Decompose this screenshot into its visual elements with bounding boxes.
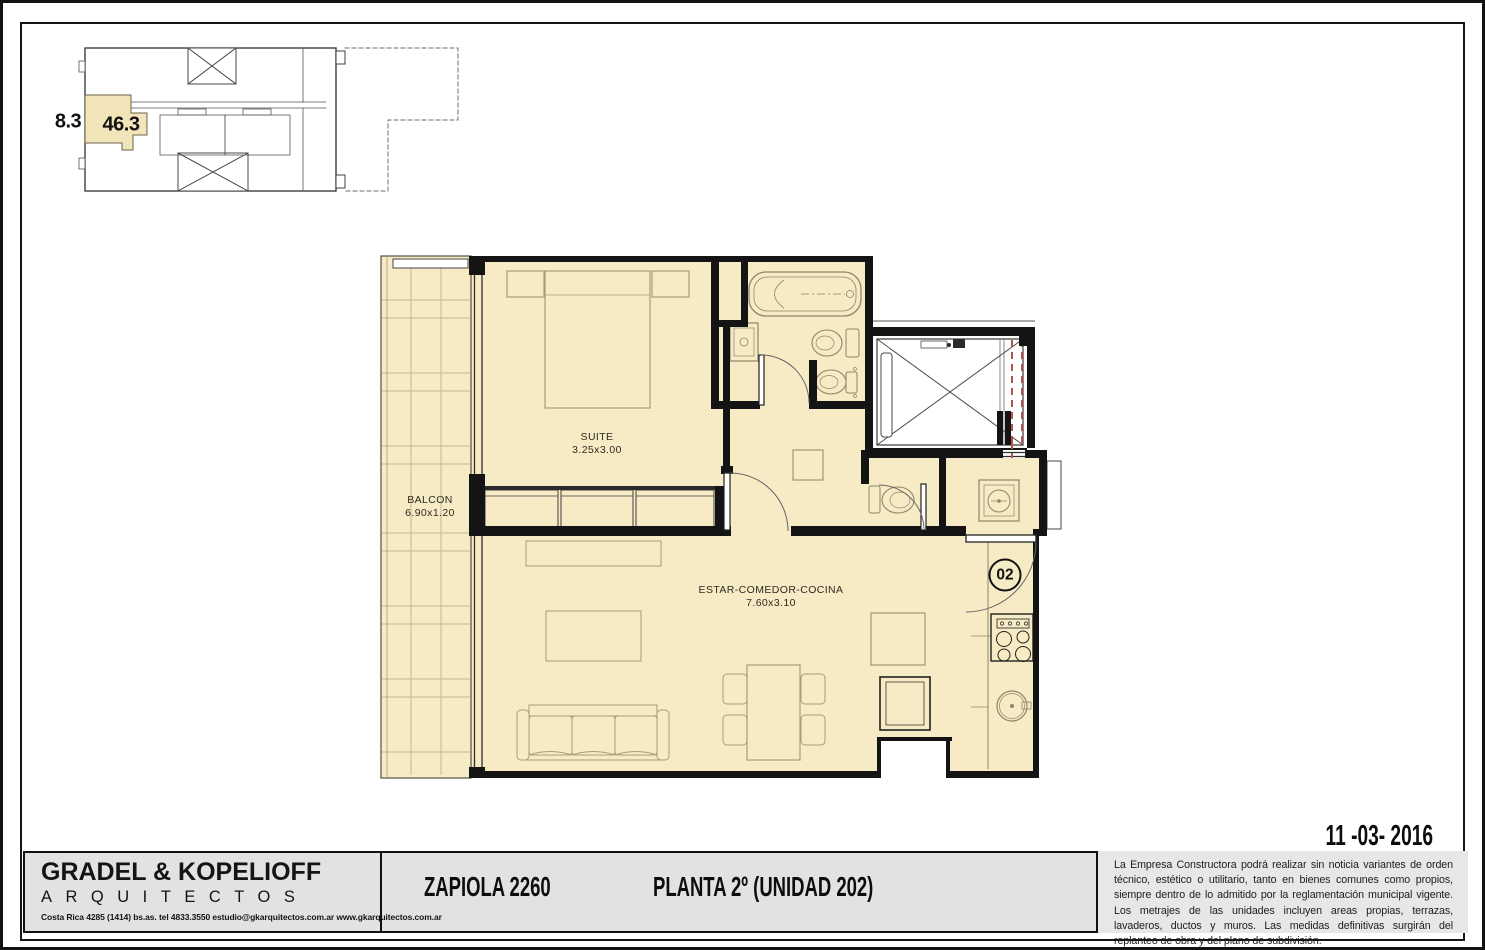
- suite-door-leaf: [724, 473, 730, 530]
- wall-jog: [717, 320, 748, 327]
- drawing-sheet: 8.3 46.3 BALCON 6.90x1.20 SUITE 3.25x3.0…: [0, 0, 1485, 950]
- wall-suite-right: [711, 258, 719, 408]
- wall-bidet-stub: [809, 360, 817, 405]
- keyplan-stairwell-bottom: [178, 153, 248, 191]
- wall-bottom-right: [949, 771, 1039, 778]
- elevator-shaft: [873, 336, 1027, 448]
- wall-bottom-left: [469, 771, 880, 778]
- unit-number-badge: 02: [989, 559, 1022, 592]
- wall-toilette-laundry-divider: [939, 458, 946, 531]
- wall-corridor-band: [865, 327, 1035, 336]
- living-name: ESTAR-COMEDOR-COCINA: [699, 584, 844, 597]
- firm-subtitle: ARQUITECTOS: [41, 888, 361, 907]
- wall-elevator-left: [865, 346, 873, 455]
- closet-top-line: [469, 486, 728, 490]
- wall-bathroom-left-lower: [723, 327, 730, 466]
- firm-name: GRADEL & KOPELIOFF: [41, 858, 361, 887]
- living-label: ESTAR-COMEDOR-COCINA 7.60x3.10: [699, 584, 844, 610]
- wall-living-top-left: [469, 526, 731, 536]
- balcony-name: BALCON: [405, 494, 455, 507]
- bathroom-door-leaf: [759, 355, 764, 405]
- firm-contact: Costa Rica 4285 (1414) bs.as. tel 4833.3…: [41, 912, 361, 922]
- wall-top: [469, 256, 873, 262]
- wall-left-cap-bottom: [469, 767, 485, 778]
- keyplan-lot-dashed-line: [345, 48, 458, 191]
- wall-kitchen-right: [1033, 529, 1039, 778]
- suite-label: SUITE 3.25x3.00: [572, 431, 622, 457]
- project-address: ZAPIOLA 2260: [424, 871, 551, 903]
- disclaimer-text: La Empresa Constructora podrá realizar s…: [1114, 858, 1453, 949]
- balcony-label: BALCON 6.90x1.20: [405, 494, 455, 520]
- keyplan-unit-area-label: 46.3: [103, 114, 140, 137]
- wall-elevator-right: [1027, 336, 1035, 448]
- sheet-title: PLANTA 2º (UNIDAD 202): [653, 871, 873, 903]
- keyplan-stairwell-top: [188, 48, 236, 84]
- firm-logo: GRADEL & KOPELIOFF ARQUITECTOS Costa Ric…: [41, 858, 361, 922]
- wall-toilette-left-stub: [861, 458, 869, 484]
- living-dims: 7.60x3.10: [699, 597, 844, 610]
- suite-dims: 3.25x3.00: [572, 444, 622, 457]
- wall-living-top-right: [791, 526, 966, 536]
- keyplan-adjacent-area-label: 8.3: [55, 111, 81, 134]
- wall-bathroom-bottom-left: [711, 401, 760, 409]
- exterior-ledge: [1047, 461, 1061, 529]
- suite-name: SUITE: [572, 431, 622, 444]
- wall-bathroom-bottom-right: [809, 401, 867, 409]
- wall-left-cap-mid: [469, 474, 485, 536]
- entry-door-leaf: [966, 535, 1036, 542]
- wall-laundry-right: [1039, 450, 1047, 536]
- wall-left-cap-top: [469, 256, 485, 275]
- wall-laundry-top-left: [861, 450, 1003, 458]
- wall-bathroom-left-upper: [741, 258, 748, 327]
- balcony-dims: 6.90x1.20: [405, 507, 455, 520]
- disclaimer-box: La Empresa Constructora podrá realizar s…: [1096, 851, 1468, 933]
- balcony-planter: [393, 259, 468, 268]
- floorplan-drawing: [3, 3, 1485, 950]
- elevator-rail: [881, 353, 892, 437]
- sheet-date: 11 -03- 2016: [1314, 820, 1433, 853]
- wall-notch: [877, 737, 952, 778]
